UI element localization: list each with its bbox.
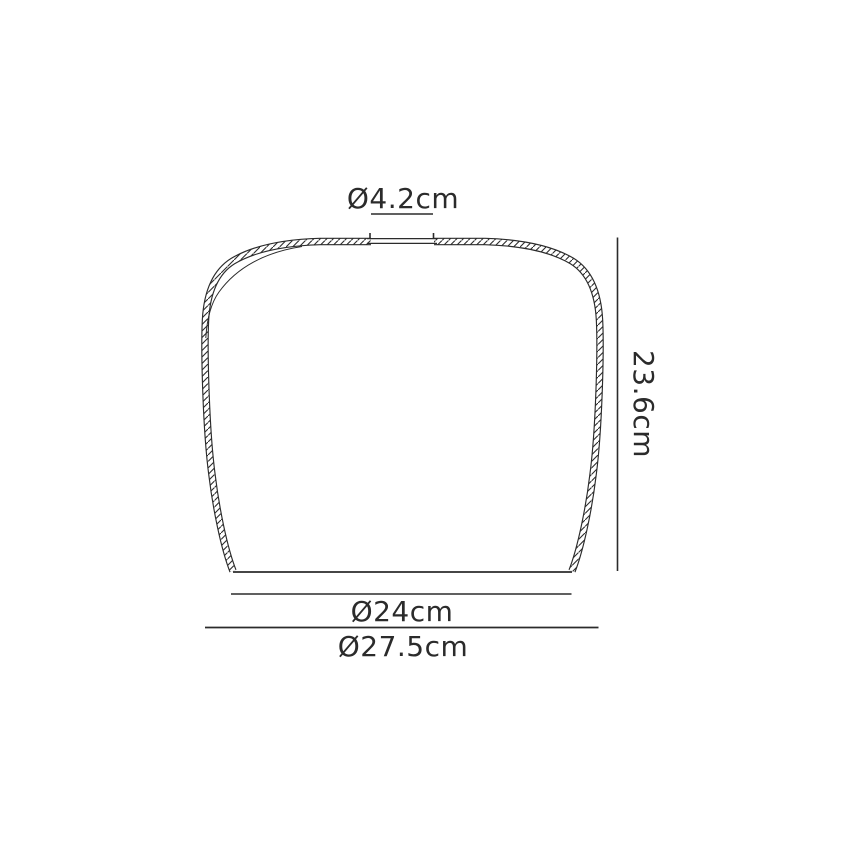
- shade-wall-left: [205, 242, 371, 572]
- shade-wall-right: [434, 242, 600, 572]
- shade-inner-edge-line: [206, 247, 302, 339]
- top-diameter-label: Ø4.2cm: [303, 184, 503, 214]
- shade-top-opening: [367, 233, 437, 243]
- height-label: 23.6cm: [628, 304, 658, 504]
- base-outer-diameter-label: Ø27.5cm: [303, 632, 503, 662]
- lampshade-drawing: [0, 0, 850, 850]
- base-inner-diameter-label: Ø24cm: [302, 597, 502, 627]
- dimension-diagram: Ø4.2cm 23.6cm Ø24cm Ø27.5cm: [0, 0, 850, 850]
